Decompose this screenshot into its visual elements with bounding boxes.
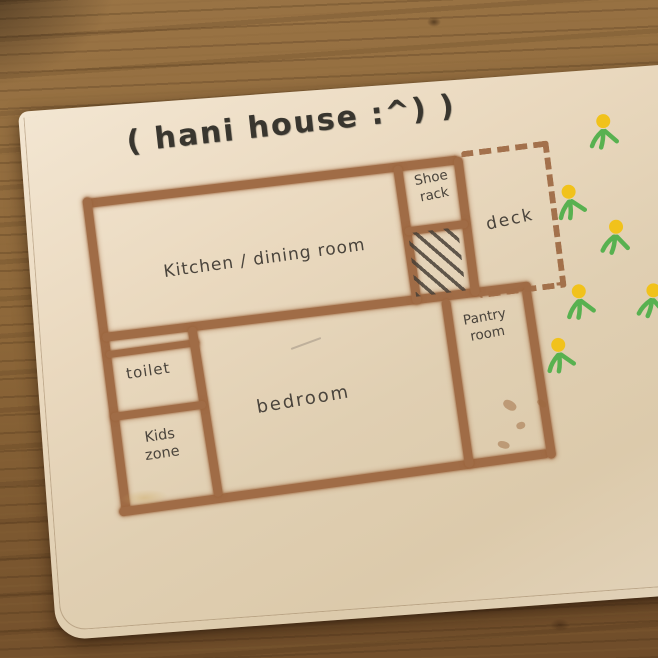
flower-icon bbox=[595, 218, 634, 259]
room-label-kitchen: Kitchen / dining room bbox=[124, 230, 404, 289]
flower-doodle bbox=[582, 112, 623, 155]
flower-icon bbox=[536, 334, 580, 380]
pencil-scratch bbox=[291, 337, 322, 350]
room-label-shoe-rack: Shoe rack bbox=[403, 165, 463, 209]
flower-doodle bbox=[546, 180, 592, 227]
wall-toilet-kids-divider bbox=[110, 400, 206, 421]
flower-icon bbox=[630, 281, 658, 323]
flower-doodle bbox=[630, 281, 658, 323]
room-label-pantry: Pantry room bbox=[453, 304, 520, 348]
room-label-bedroom: bedroom bbox=[255, 381, 352, 419]
flower-doodle bbox=[557, 281, 600, 326]
flower-doodle bbox=[536, 334, 580, 380]
paper-sheet: ( hani house :^) ) Kitchen / dining room… bbox=[18, 59, 658, 641]
room-label-kids-zone: Kids zone bbox=[130, 423, 193, 467]
flower-icon bbox=[546, 180, 592, 227]
wood-table-background: { "title": "( hani house :^) )", "plan":… bbox=[0, 0, 658, 658]
flower-icon bbox=[582, 112, 623, 155]
wall-toilet-top bbox=[106, 339, 200, 359]
entrance-hatch bbox=[408, 227, 466, 297]
wall-bedroom-left bbox=[187, 326, 223, 497]
flower-doodle bbox=[595, 218, 634, 259]
room-label-toilet: toilet bbox=[125, 359, 172, 384]
flower-icon bbox=[557, 281, 600, 326]
floor-plan: Kitchen / dining room Shoe rack deck toi… bbox=[76, 137, 590, 532]
